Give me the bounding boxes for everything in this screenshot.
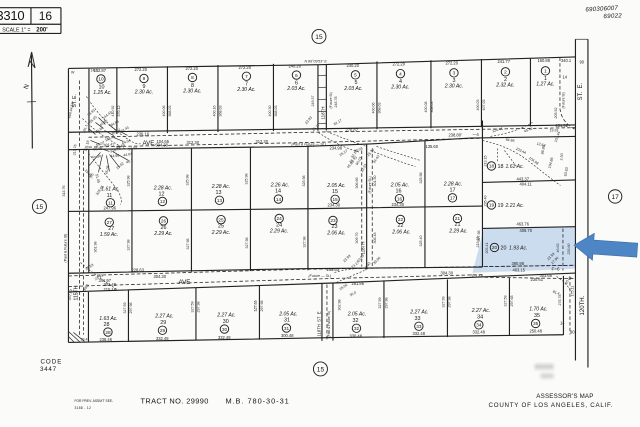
svg-text:135.60: 135.60 [425,144,438,149]
svg-text:327.59: 327.59 [378,297,382,308]
svg-text:2.03 Ac.: 2.03 Ac. [343,86,363,92]
svg-text:2.30 Ac.: 2.30 Ac. [134,89,154,95]
svg-text:325.98: 325.98 [302,175,306,186]
svg-text:332.48: 332.48 [412,331,425,336]
svg-text:35: 35 [534,313,540,319]
svg-text:327.59: 327.59 [504,295,508,306]
svg-text:N 89°09'53" E: N 89°09'53" E [304,59,327,63]
svg-text:304.30: 304.30 [440,270,453,275]
svg-text:35: 35 [533,321,539,326]
svg-text:SCALE 1" =: SCALE 1" = [2,27,30,33]
svg-text:408.70: 408.70 [519,228,532,233]
svg-text:327.98: 327.98 [245,237,249,248]
svg-text:297.98: 297.98 [448,296,452,307]
svg-text:308.48: 308.48 [373,232,377,243]
svg-text:327.59: 327.59 [190,301,194,312]
svg-text:2.05 Ac.: 2.05 Ac. [278,311,298,317]
svg-text:29: 29 [160,320,166,326]
svg-text:15: 15 [315,34,323,41]
svg-text:325.98: 325.98 [126,175,130,186]
svg-text:2.27 Ac.: 2.27 Ac. [471,308,491,314]
svg-text:24: 24 [276,222,282,228]
svg-text:23: 23 [331,224,337,230]
svg-text:272.20: 272.20 [134,67,147,72]
svg-text:1.59 Ac.: 1.59 Ac. [100,232,119,238]
svg-text:12: 12 [158,191,164,197]
svg-text:2: 2 [504,70,507,75]
svg-text:118TH ST E: 118TH ST E [316,311,321,336]
svg-text:297.98: 297.98 [129,302,133,313]
svg-text:21: 21 [455,216,461,221]
svg-text:238.46: 238.46 [99,337,112,342]
svg-text:29: 29 [160,328,166,333]
svg-text:278.78: 278.78 [558,294,562,305]
svg-text:38.41: 38.41 [80,337,89,341]
svg-text:241.77: 241.77 [497,59,510,64]
svg-text:2.29 Ac.: 2.29 Ac. [269,229,289,235]
svg-text:W: W [71,70,75,74]
svg-text:2.50: 2.50 [559,153,564,160]
svg-text:203.41: 203.41 [485,242,489,253]
svg-text:22: 22 [398,217,404,222]
svg-text:297.98: 297.98 [196,301,200,312]
svg-text:340.1: 340.1 [561,58,572,63]
svg-text:234.98: 234.98 [329,146,342,151]
svg-text:2.27 Ac.: 2.27 Ac. [409,310,429,316]
svg-text:10: 10 [98,77,104,82]
svg-text:31: 31 [284,318,290,324]
svg-text:32: 32 [354,326,360,331]
svg-text:90: 90 [570,329,575,334]
svg-text:200': 200' [36,28,48,34]
svg-text:160.88: 160.88 [537,58,550,63]
svg-text:215.16: 215.16 [103,287,116,292]
svg-text:247.96: 247.96 [103,206,116,211]
svg-text:11: 11 [107,193,113,199]
svg-text:30: 30 [222,327,228,332]
svg-text:330.48: 330.48 [349,333,362,338]
svg-text:7: 7 [245,74,248,79]
svg-text:TRACT NO. 29990: TRACT NO. 29990 [140,396,208,405]
svg-text:234.30: 234.30 [327,203,340,208]
svg-text:272.20: 272.20 [445,60,458,65]
svg-text:327.59: 327.59 [123,302,127,313]
svg-text:(Past & Future St): (Past & Future St) [327,311,331,337]
svg-text:230.61: 230.61 [530,277,543,282]
svg-text:AVE: AVE [178,279,190,286]
svg-text:2.30 Ac.: 2.30 Ac. [390,84,410,90]
svg-text:25: 25 [218,224,224,230]
svg-text:27: 27 [108,226,114,232]
svg-text:14: 14 [560,320,565,325]
svg-text:—4: —4 [472,132,479,137]
svg-text:297.98: 297.98 [260,300,264,311]
svg-text:325.98: 325.98 [186,174,190,185]
svg-text:17: 17 [450,196,456,201]
svg-text:27: 27 [107,220,113,225]
svg-text:59.05: 59.05 [93,147,102,152]
svg-text:ST. E.: ST. E. [578,82,584,100]
svg-text:2.29 Ac.: 2.29 Ac. [211,230,231,236]
svg-text:463.76: 463.76 [516,222,529,227]
svg-text:28: 28 [103,322,109,328]
svg-text:327.69: 327.69 [254,300,258,311]
svg-text:2.21 Ac.: 2.21 Ac. [504,203,524,209]
svg-text:30: 30 [223,319,229,325]
svg-text:400.30: 400.30 [268,105,272,116]
svg-text:327.98: 327.98 [302,236,306,247]
svg-text:FOR PREV. ASSM'T SEE-: FOR PREV. ASSM'T SEE- [74,399,113,403]
svg-text:238.80': 238.80' [448,133,462,138]
svg-text:361.98: 361.98 [93,241,97,252]
svg-text:309.70: 309.70 [355,232,359,243]
svg-text:34: 34 [476,323,482,328]
svg-text:400.06: 400.06 [162,105,166,116]
svg-text:235.60: 235.60 [567,243,571,254]
svg-text:▮▮▮▮: ▮▮▮▮ [540,373,553,379]
svg-text:302.98: 302.98 [337,299,341,310]
svg-text:1.27 Ac.: 1.27 Ac. [536,82,555,88]
svg-text:23: 23 [330,218,336,223]
svg-text:28: 28 [105,330,111,335]
svg-text:20: 20 [500,246,506,252]
svg-text:175.11: 175.11 [570,286,574,297]
svg-text:5: 5 [354,73,357,78]
svg-text:44.98: 44.98 [110,154,119,159]
svg-text:325.40: 325.40 [419,235,423,246]
svg-text:26: 26 [161,219,167,224]
svg-text:2.05 Ac.: 2.05 Ac. [347,312,367,318]
svg-text:25: 25 [218,217,224,222]
svg-text:400.06: 400.06 [371,102,375,113]
svg-text:236.16: 236.16 [136,132,149,137]
svg-text:1: 1 [544,69,547,74]
svg-text:372.48: 372.48 [470,274,483,279]
svg-text:3310: 3310 [0,8,24,23]
svg-text:1.70 Ac.: 1.70 Ac. [529,306,548,312]
svg-text:368.03: 368.03 [430,101,434,112]
svg-text:69022: 69022 [603,12,622,20]
svg-text:34: 34 [477,314,483,320]
svg-text:22: 22 [397,223,403,229]
svg-text:2.05 Ac.: 2.05 Ac. [390,182,410,188]
svg-text:26: 26 [160,225,166,231]
svg-text:2.27 Ac.: 2.27 Ac. [154,314,174,320]
svg-text:272.20: 272.20 [238,65,251,70]
svg-text:32: 32 [352,318,358,324]
svg-text:312.30: 312.30 [186,140,199,145]
svg-text:16: 16 [39,9,53,23]
svg-text:1.61 Ac.: 1.61 Ac. [505,164,524,170]
svg-text:297.68: 297.68 [510,295,514,306]
svg-text:6: 6 [295,73,298,78]
svg-text:255.63: 255.63 [326,267,339,272]
svg-text:332.48: 332.48 [472,330,485,335]
svg-text:46.63: 46.63 [556,243,560,252]
svg-text:332.48: 332.48 [218,335,231,340]
svg-text:304.30: 304.30 [153,274,166,279]
svg-text:400.03: 400.03 [476,99,480,110]
svg-text:368.03: 368.03 [377,102,381,113]
svg-text:19.91: 19.91 [549,128,558,132]
svg-text:12: 12 [160,199,166,204]
svg-text:118TH: 118TH [320,107,325,120]
svg-text:368.03: 368.03 [218,105,222,116]
svg-text:21: 21 [454,222,460,228]
svg-text:240.20: 240.20 [288,64,301,69]
svg-text:327.99: 327.99 [442,296,446,307]
svg-text:15: 15 [36,204,44,211]
svg-text:14: 14 [276,197,282,202]
svg-text:15: 15 [333,197,339,202]
svg-text:18: 18 [497,164,503,170]
svg-text:F=6: F=6 [551,266,559,271]
svg-text:234.30: 234.30 [391,202,404,207]
svg-text:(Past & Future St): (Past & Future St) [63,234,67,263]
svg-text:15: 15 [317,366,325,373]
svg-text:248.78: 248.78 [334,96,338,107]
svg-text:312.30: 312.30 [255,139,268,144]
svg-text:13: 13 [215,190,221,196]
svg-text:(Future — St.): (Future — St.) [308,274,331,278]
svg-text:90: 90 [579,59,584,64]
svg-text:3447: 3447 [40,366,57,373]
svg-text:20: 20 [492,245,498,250]
svg-text:370.12: 370.12 [117,105,121,116]
svg-text:19: 19 [489,203,495,208]
svg-text:142.87: 142.87 [93,68,106,73]
svg-text:410.92: 410.92 [111,105,115,116]
svg-text:16: 16 [397,196,403,201]
svg-text:2.32 Ac.: 2.32 Ac. [495,83,515,89]
svg-text:249.37: 249.37 [311,95,315,106]
svg-text:297.98: 297.98 [384,297,388,308]
svg-text:1.25 Ac.: 1.25 Ac. [93,90,112,96]
svg-text:368.03: 368.03 [168,105,172,116]
svg-text:18: 18 [489,164,495,169]
svg-text:240.20: 240.20 [346,63,359,68]
svg-text:M.B. 780-30-31: M.B. 780-30-31 [225,396,289,405]
svg-text:2.06 Ac.: 2.06 Ac. [391,229,411,235]
svg-text:325.98: 325.98 [245,173,249,184]
svg-text:2.27 Ac.: 2.27 Ac. [216,313,236,319]
svg-text:2.05 Ac.: 2.05 Ac. [326,183,346,189]
svg-text:205.52: 205.52 [554,107,558,118]
svg-text:118TH: 118TH [360,242,365,255]
svg-text:4: 4 [399,71,402,76]
svg-text:1.93 Ac.: 1.93 Ac. [509,246,528,252]
svg-text:400.16: 400.16 [212,105,216,116]
svg-text:272.20: 272.20 [392,61,405,66]
svg-text:9: 9 [143,76,146,81]
svg-text:407.03: 407.03 [482,99,486,110]
svg-text:AVE.: AVE. [142,140,156,147]
svg-text:33: 33 [416,324,422,329]
svg-text:17: 17 [611,194,619,201]
svg-text:16: 16 [395,189,401,195]
svg-text:31: 31 [284,326,290,331]
svg-text:13: 13 [217,198,223,203]
svg-text:8: 8 [191,75,194,80]
svg-text:115TH: 115TH [73,285,79,300]
svg-text:404.11: 404.11 [519,182,532,187]
svg-text:213.15: 213.15 [484,155,488,166]
svg-text:19: 19 [497,203,503,209]
svg-text:104.65: 104.65 [156,139,169,144]
svg-text:(Future St.): (Future St.) [368,176,372,193]
svg-text:2.29 Ac.: 2.29 Ac. [448,228,468,234]
svg-text:2.30 Ac.: 2.30 Ac. [444,84,464,90]
svg-text:▮▮▮▮▮: ▮▮▮▮▮ [534,363,553,370]
svg-text:3188 - 12: 3188 - 12 [74,406,91,410]
svg-text:15: 15 [332,189,338,195]
svg-text:ASSESSOR'S MAP: ASSESSOR'S MAP [536,393,593,400]
svg-text:2.30 Ac.: 2.30 Ac. [236,87,256,93]
svg-text:306.66: 306.66 [355,177,359,188]
svg-text:24: 24 [277,216,283,221]
svg-text:213.15: 213.15 [476,236,480,247]
svg-text:CODE: CODE [40,358,62,365]
svg-text:327.98: 327.98 [186,238,190,249]
svg-text:400.08: 400.08 [424,101,428,112]
svg-text:235.40: 235.40 [484,195,488,206]
svg-text:300.48: 300.48 [281,333,294,338]
svg-text:120TH.: 120TH. [580,295,586,315]
svg-text:2.03 Ac.: 2.03 Ac. [286,86,306,92]
svg-text:325.98: 325.98 [419,172,423,183]
svg-text:250.48: 250.48 [529,328,542,333]
svg-text:17: 17 [449,188,455,194]
svg-text:272.20: 272.20 [185,66,198,71]
svg-text:14: 14 [562,74,567,79]
svg-text:390.98: 390.98 [511,261,524,266]
svg-text:33: 33 [414,316,420,322]
svg-text:327.98: 327.98 [126,239,130,250]
svg-text:313.76: 313.76 [62,185,66,196]
svg-text:COUNTY OF LOS ANGELES, CALIF.: COUNTY OF LOS ANGELES, CALIF. [489,402,614,409]
svg-text:14: 14 [275,189,281,195]
svg-text:2.06 Ac.: 2.06 Ac. [326,230,346,236]
svg-text:301.50: 301.50 [373,175,377,186]
svg-text:(Future St): (Future St) [329,92,333,108]
svg-text:368.03: 368.03 [274,105,278,116]
svg-text:463.15: 463.15 [512,268,525,273]
svg-text:332.48: 332.48 [156,336,169,341]
svg-text:(Future St): (Future St) [561,92,565,108]
svg-text:2.28 Ac.: 2.28 Ac. [443,181,463,187]
svg-text:2.30 Ac.: 2.30 Ac. [182,88,202,94]
svg-text:3: 3 [453,71,456,76]
svg-text:2.29 Ac.: 2.29 Ac. [153,231,173,237]
